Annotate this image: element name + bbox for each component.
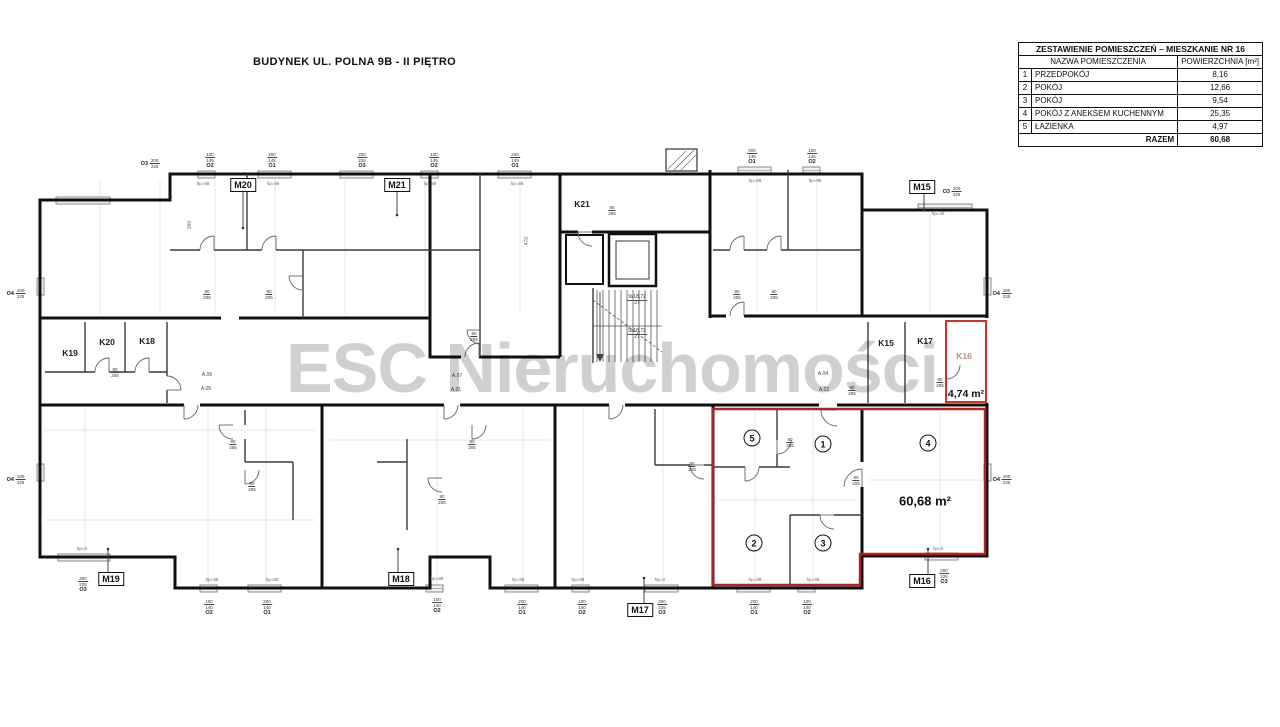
sill-height-label: hp=88 [266,577,279,582]
window-name: O3 [658,610,665,616]
dimension-fraction: 80205 [229,439,237,450]
dimension-fraction: 200225 [657,599,667,610]
sill-height-label: hp=0 [655,577,665,582]
total-label: RAZEM [1019,134,1178,147]
window-tag-o2: 100145O2 [429,152,439,169]
storage-tag-k16: K16 [956,351,972,361]
sill-height-label: hp=88 [749,178,762,183]
room-marker-2: 2 [746,535,763,552]
dimension-fraction: 80205 [265,289,273,300]
window-name: O1 [268,163,275,169]
sill-height-label: hp=88 [512,577,525,582]
window-name: O2 [433,608,440,614]
sill-height-label: hp=88 [807,577,820,582]
window-tag-o1: 200145O1 [510,152,520,169]
window-tag-o3: O3200225 [141,158,160,169]
window-name: O2 [430,163,437,169]
apartment-tag-m18: M18 [388,572,414,586]
sill-height-label: hp=88 [431,576,444,581]
window-tag-o1: 200145O1 [267,152,277,169]
dimension-fraction: 100225 [1002,288,1012,299]
window-name: O1 [511,163,518,169]
door-dim-label: 80205 [852,466,860,486]
dimension-fraction: 80205 [786,437,794,448]
window-name: O1 [518,610,525,616]
sill-height-label: hp=0 [77,546,87,551]
window-name: O3 [79,587,86,593]
table-row: 1 PRZEDPOKÓJ 8,16 [1019,69,1263,82]
window-tag-o1: 200140O1 [262,599,272,616]
dimension-fraction: 100225 [16,474,26,485]
sill-height-label: hp=88 [206,577,219,582]
dimension-fraction: 100145 [807,148,817,159]
door-dim-label: 80205 [786,428,794,448]
apartment-tag-m15: M15 [909,180,935,194]
window-tag-o3: O3200225 [943,186,962,197]
dimension-fraction: 200140 [262,599,272,610]
unit-ref-label: A.06 [202,372,212,378]
sill-height-label: hp=88 [424,181,437,186]
window-name: O1 [750,610,757,616]
summary-table: ZESTAWIENIE POMIESZCZEŃ – MIESZKANIE NR … [1018,42,1263,147]
table-row: 2 POKÓJ 12,66 [1019,82,1263,95]
dimension-fraction: 200145 [267,152,277,163]
window-tag-o1: 200140O1 [749,599,759,616]
apartment-tag-m19: M19 [98,572,124,586]
dimension-fraction: 100225 [1002,474,1012,485]
window-tag-o4: O4100225 [7,288,26,299]
dimension-fraction: 100225 [16,288,26,299]
area-label: 60,68 m² [899,494,951,509]
storage-tag-k21: K21 [574,199,590,209]
window-name: O2 [803,610,810,616]
door-dim-label: 80205 [111,358,119,378]
door-dim-label: 80205 [248,472,256,492]
table-row: 5 ŁAZIENKA 4,97 [1019,121,1263,134]
dimension-fraction: 200225 [150,158,160,169]
door-dim-label: 80205 [203,280,211,300]
dimension-fraction: 200225 [78,576,88,587]
window-name: O1 [263,610,270,616]
storage-tag-k19: K19 [62,348,78,358]
floor-plan-page: BUDYNEK UL. POLNA 9B - II PIĘTRO M20M21M… [0,0,1280,727]
window-tag-o3: 200225O3 [939,568,949,585]
dimension-fraction: 80205 [688,461,696,472]
table-header-row: NAZWA POMIESZCZENIA POWIERZCHNIA [m²] [1019,56,1263,69]
sill-height-label: hp=88 [197,181,210,186]
total-value: 60,68 [1178,134,1263,147]
window-name: O4 [993,291,1000,297]
door-dim-label: 80205 [688,452,696,472]
window-tag-o4: O4100225 [7,474,26,485]
sill-height-label: hp=0 [933,546,943,551]
sill-height-label: hp=88 [749,577,762,582]
window-name: O1 [748,159,755,165]
window-tag-o2: 100145O2 [205,152,215,169]
dimension-fraction: 200225 [939,568,949,579]
dimension-fraction: 80205 [203,289,211,300]
dimension-fraction: 80205 [468,439,476,450]
dimension-fraction: 80205 [111,367,119,378]
window-tag-o3: 200225O3 [357,152,367,169]
sill-height-label: hp=88 [809,178,822,183]
window-tag-o4: O4100225 [993,474,1012,485]
apartment-tag-m17: M17 [627,603,653,617]
dim-label: 360 [187,221,193,229]
room-marker-1: 1 [815,436,832,453]
dimension-fraction: 200225 [952,186,962,197]
dimension-fraction: 200225 [357,152,367,163]
window-tag-o3: 200225O3 [657,599,667,616]
dimension-fraction: 80205 [852,475,860,486]
col-name-header: NAZWA POMIESZCZENIA [1019,56,1178,69]
dimension-fraction: 100145 [205,152,215,163]
window-tag-o2: 100145O2 [807,148,817,165]
window-name: O2 [578,610,585,616]
unit-ref-label: A.05 [201,386,211,392]
window-name: O4 [993,477,1000,483]
dimension-fraction: 80205 [733,289,741,300]
table-total-row: RAZEM 60,68 [1019,134,1263,147]
dimension-fraction: 100140 [802,599,812,610]
dimension-fraction: 80205 [770,289,778,300]
sill-height-label: hp=88 [511,181,524,186]
window-name: O2 [205,610,212,616]
window-tag-o1: 200140O1 [517,599,527,616]
window-tag-o2: 100140O2 [577,599,587,616]
sill-height-label: hp=40 [932,211,945,216]
window-name: O3 [141,161,148,167]
dimension-fraction: 200140 [749,599,759,610]
dimension-fraction: 200145 [510,152,520,163]
dimension-fraction: 100140 [577,599,587,610]
apartment-tag-m16: M16 [909,574,935,588]
dim-label: 470 [524,237,530,245]
sill-height-label: hp=88 [572,577,585,582]
storage-tag-k18: K18 [139,336,155,346]
window-name: O2 [808,159,815,165]
door-dim-label: 80205 [770,280,778,300]
stair-note: 9x18,7227 [627,294,647,306]
dimension-fraction: 100145 [429,152,439,163]
window-name: O4 [7,477,14,483]
dimension-fraction: 80205 [248,481,256,492]
window-name: O4 [7,291,14,297]
door-dim-label: 80205 [265,280,273,300]
table-title: ZESTAWIENIE POMIESZCZEŃ – MIESZKANIE NR … [1019,43,1263,56]
apartment-tag-m20: M20 [230,178,256,192]
col-area-header: POWIERZCHNIA [m²] [1178,56,1263,69]
room-marker-3: 3 [815,535,832,552]
window-name: O3 [940,579,947,585]
window-tag-o1: 200145O1 [747,148,757,165]
window-name: O2 [206,163,213,169]
door-dim-label: 80205 [608,196,616,216]
door-dim-label: 80205 [468,430,476,450]
dimension-fraction: 200140 [517,599,527,610]
dimension-fraction: 80205 [608,205,616,216]
page-title: BUDYNEK UL. POLNA 9B - II PIĘTRO [253,56,456,68]
dimension-fraction: 80205 [438,494,446,505]
apartment-tag-m21: M21 [384,178,410,192]
room-marker-4: 4 [920,435,937,452]
window-name: O3 [358,163,365,169]
area-label: 4,74 m² [948,388,984,400]
window-tag-o2: 100140O2 [802,599,812,616]
watermark: ESC Nieruchomości [286,328,938,408]
sill-height-label: hp=88 [267,181,280,186]
table-title-row: ZESTAWIENIE POMIESZCZEŃ – MIESZKANIE NR … [1019,43,1263,56]
table-row: 3 POKÓJ 9,54 [1019,95,1263,108]
dimension-fraction: 100140 [432,597,442,608]
door-dim-label: 80205 [438,485,446,505]
window-tag-o3: 200225O3 [78,576,88,593]
table-row: 4 POKÓJ Z ANEKSEM KUCHENNYM 25,35 [1019,108,1263,121]
door-dim-label: 80205 [733,280,741,300]
window-tag-o2: 100140O2 [432,597,442,614]
storage-tag-k20: K20 [99,337,115,347]
room-marker-5: 5 [744,430,761,447]
window-tag-o4: O4100225 [993,288,1012,299]
dimension-fraction: 200145 [747,148,757,159]
window-name: O3 [943,189,950,195]
door-dim-label: 80205 [229,430,237,450]
dimension-fraction: 100140 [204,599,214,610]
window-tag-o2: 100140O2 [204,599,214,616]
